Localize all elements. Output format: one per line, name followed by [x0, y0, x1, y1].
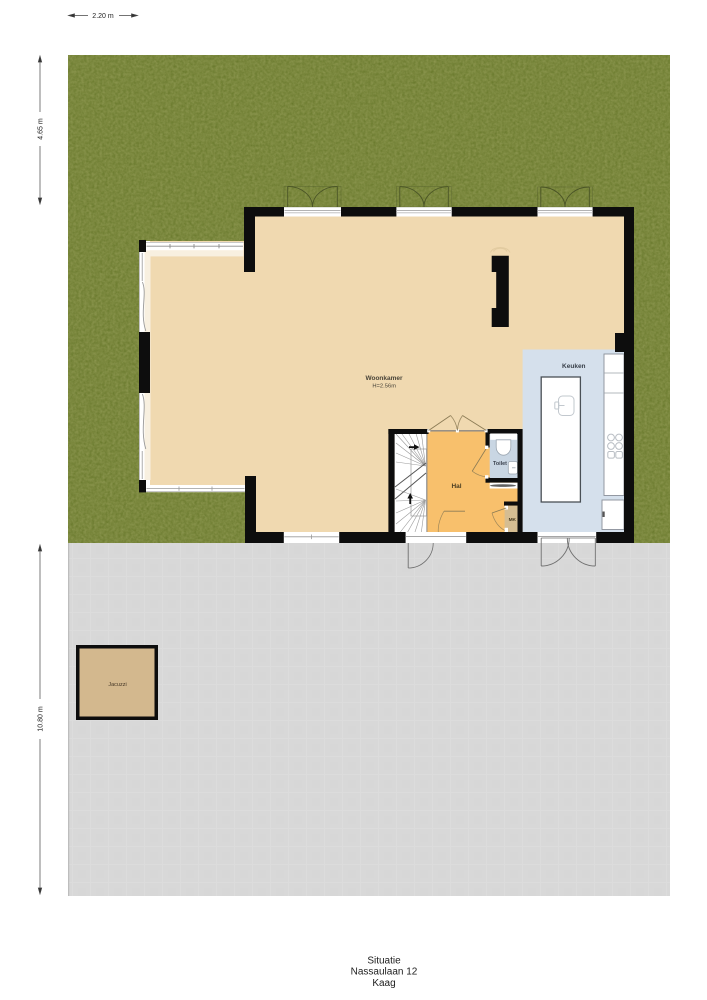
- svg-text:Toilet: Toilet: [493, 461, 507, 467]
- svg-text:Situatie: Situatie: [367, 956, 401, 967]
- svg-text:Kaag: Kaag: [372, 978, 395, 989]
- svg-text:Woonkamer: Woonkamer: [365, 375, 403, 382]
- svg-text:10.80 m: 10.80 m: [38, 706, 45, 731]
- svg-text:Hal: Hal: [451, 483, 461, 490]
- svg-text:2.20 m: 2.20 m: [92, 13, 114, 20]
- svg-text:Jacuzzi: Jacuzzi: [108, 682, 126, 688]
- svg-text:Keuken: Keuken: [562, 363, 586, 370]
- svg-text:MK: MK: [509, 517, 517, 523]
- svg-text:H=2.56m: H=2.56m: [372, 383, 396, 389]
- svg-text:4.65 m: 4.65 m: [38, 118, 45, 140]
- svg-text:Nassaulaan 12: Nassaulaan 12: [351, 967, 418, 978]
